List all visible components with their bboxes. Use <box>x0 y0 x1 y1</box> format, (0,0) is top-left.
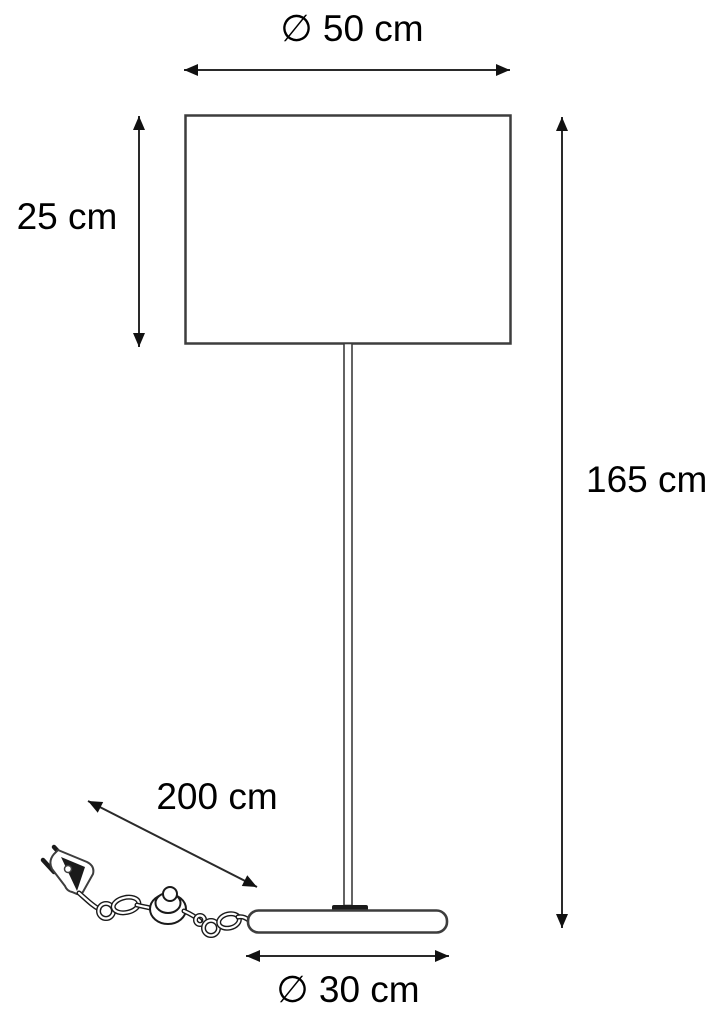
lamp-pole <box>344 344 352 906</box>
base-diameter-label: ∅ 30 cm <box>276 969 419 1010</box>
lampshade-outline <box>186 116 511 344</box>
cable-loops-2 <box>184 911 250 936</box>
cable-length-label: 200 cm <box>156 776 277 817</box>
dim-shade-height: 25 cm <box>17 116 139 347</box>
power-cord <box>43 847 250 936</box>
foot-switch-icon <box>150 887 186 924</box>
lamp-dimension-diagram: ∅ 50 cm 25 cm 165 cm 200 cm <box>0 0 724 1020</box>
dim-lamp-height: 165 cm <box>562 117 707 928</box>
dim-cable-length: 200 cm <box>88 776 278 887</box>
dim-shade-diameter: ∅ 50 cm <box>184 8 510 70</box>
dim-base-diameter: ∅ 30 cm <box>246 956 449 1010</box>
shade-diameter-label: ∅ 50 cm <box>280 8 423 49</box>
plug-icon <box>43 847 93 894</box>
lamp-height-label: 165 cm <box>586 459 707 500</box>
shade-height-label: 25 cm <box>17 196 118 237</box>
lamp-base-outline <box>248 911 447 933</box>
cable-loops <box>79 893 153 919</box>
